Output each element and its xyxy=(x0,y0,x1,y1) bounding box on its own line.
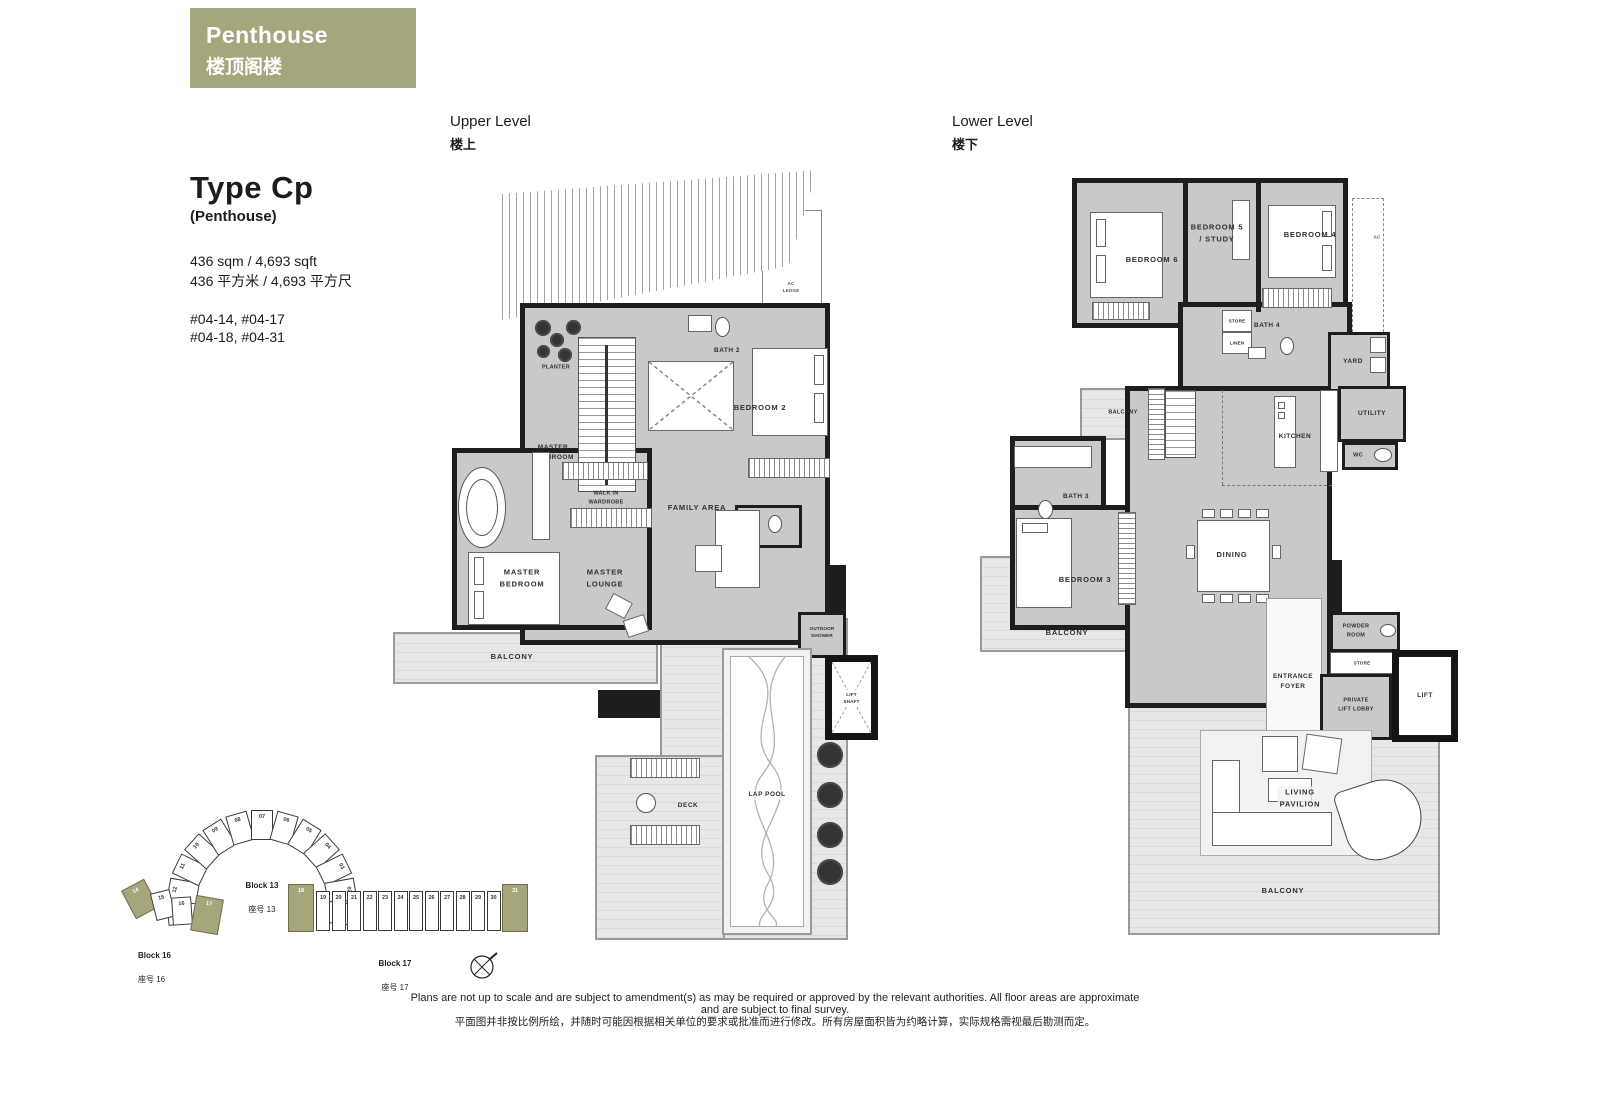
dining-chair xyxy=(1220,509,1233,518)
block17-label-en: Block 17 xyxy=(379,959,412,968)
upper-level-heading: Upper Level xyxy=(450,113,531,130)
room-label-bedroom3: BEDROOM 3 xyxy=(1059,574,1112,586)
compass-icon xyxy=(468,950,500,982)
room-label-deck: DECK xyxy=(678,801,698,811)
room-label-lift-shaft: LIFT SHAFT xyxy=(842,689,860,705)
unit-number: 11 xyxy=(173,855,190,877)
room-label-wc: WC xyxy=(1353,452,1363,461)
siteplan-unit: 28 xyxy=(456,891,470,931)
floorplan-page: Penthouse 楼顶阁楼 Type Cp (Penthouse) 436 s… xyxy=(0,0,1600,1112)
disclaimer-en: Plans are not up to scale and are subjec… xyxy=(400,992,1150,1016)
badge-title: Penthouse xyxy=(206,22,416,49)
room-label-outdoor-shower: OUTDOOR SHOWER xyxy=(810,625,835,639)
toilet-icon xyxy=(1038,500,1053,519)
bed-pillow xyxy=(474,557,484,585)
unit-number: 27 xyxy=(441,892,453,901)
block17-label: Block 17 座号 17 xyxy=(379,946,412,994)
room-label-master-lounge: MASTER LOUNGE xyxy=(587,566,624,589)
wall-segment xyxy=(598,690,660,718)
bed-pillow xyxy=(474,591,484,619)
bathtub-inner xyxy=(466,479,498,536)
kitchen-boundary xyxy=(1222,390,1224,485)
room-label-linen: LINEN xyxy=(1230,339,1245,346)
stove-icon xyxy=(1278,412,1285,419)
room-label-bedroom2: BEDROOM 2 xyxy=(734,402,787,414)
block13-label-en: Block 13 xyxy=(246,881,279,890)
vanity-counter xyxy=(532,452,550,540)
plant-icon xyxy=(550,333,564,347)
kitchen-counter xyxy=(1320,390,1338,472)
terrace-area-2 xyxy=(595,755,725,940)
room-label-store-upper: STORE xyxy=(1229,317,1246,324)
bed-pillow xyxy=(1096,219,1106,247)
unit-number: 06 xyxy=(276,812,298,826)
toilet-icon xyxy=(1374,448,1392,462)
plant-icon xyxy=(537,345,550,358)
toilet-icon xyxy=(1380,624,1396,637)
bed-pillow xyxy=(814,393,824,423)
siteplan-unit: 20 xyxy=(332,891,346,931)
siteplan-unit: 30 xyxy=(487,891,501,931)
siteplan-unit: 16 xyxy=(171,896,193,925)
void-area xyxy=(648,361,734,431)
wall-segment xyxy=(1332,560,1342,612)
lower-level-heading-zh: 楼下 xyxy=(952,134,978,153)
siteplan-unit: 27 xyxy=(440,891,454,931)
badge-title-zh: 楼顶阁楼 xyxy=(206,52,416,79)
unit-number: 29 xyxy=(472,892,484,901)
plant-icon xyxy=(817,742,843,768)
room-label-yard: YARD xyxy=(1343,357,1363,367)
plant-icon xyxy=(558,348,572,362)
unit-number: 22 xyxy=(364,892,376,901)
room-label-store-lower: STORE xyxy=(1354,659,1371,666)
room-label-entrance-foyer: ENTRANCE FOYER xyxy=(1273,672,1313,692)
bed-pillow xyxy=(1096,255,1106,283)
type-badge: Penthouse 楼顶阁楼 xyxy=(190,8,416,88)
room-label-lap-pool: LAP POOL xyxy=(746,790,787,800)
unit-number: 14 xyxy=(122,880,147,899)
block17-label-zh: 座号 17 xyxy=(381,983,408,992)
disclaimer-zh: 平面图并非按比例所绘，并随时可能因根据相关单位的要求或批准而进行修改。所有房屋面… xyxy=(400,1014,1150,1029)
room-label-kitchen: KITCHEN xyxy=(1279,432,1311,442)
dining-chair xyxy=(1202,509,1215,518)
wardrobe-rack xyxy=(1262,288,1332,308)
lower-level-plan: AC BEDROOM 6 BEDROOM 5 / STUDY BEDROOM 4… xyxy=(950,165,1462,950)
room-label-balcony-left: BALCONY xyxy=(1046,627,1089,639)
siteplan-unit: 23 xyxy=(378,891,392,931)
room-label-balcony-lower: BALCONY xyxy=(1262,885,1305,897)
armchair xyxy=(1302,734,1343,775)
room-label-bedroom5: BEDROOM 5 / STUDY xyxy=(1191,221,1244,244)
room-label-bedroom4: BEDROOM 4 xyxy=(1284,229,1337,241)
room-label-walk-in-wardrobe: WALK IN WARDROBE xyxy=(588,489,623,506)
siteplan-unit: 22 xyxy=(363,891,377,931)
store-closet: STORE xyxy=(1222,310,1252,332)
bath4-sink xyxy=(1248,347,1266,359)
lift: LIFT xyxy=(1392,650,1458,742)
room-label-balcony-upper: BALCONY xyxy=(491,651,534,663)
staircase-lower xyxy=(1165,390,1196,458)
bathtub-bath3 xyxy=(1014,446,1092,468)
unit-number: 21 xyxy=(348,892,360,901)
room-label-bath3: BATH 3 xyxy=(1063,492,1089,502)
dining-chair xyxy=(1238,594,1251,603)
siteplan-unit: 24 xyxy=(394,891,408,931)
wardrobe-rack xyxy=(748,458,830,478)
deck-table xyxy=(636,793,656,813)
site-key-plan: 13 12 11 10 09 08 07 06 05 04 03 02 01 B… xyxy=(120,778,550,998)
room-label-ac-ledge: AC LEDGE xyxy=(783,280,800,294)
unit-number: 08 xyxy=(226,812,248,826)
washer-icon xyxy=(1370,337,1386,353)
wall-segment xyxy=(828,565,846,612)
unit-number: 04 xyxy=(318,835,338,856)
dining-chair xyxy=(1256,509,1269,518)
block16-label-zh: 座号 16 xyxy=(138,975,165,984)
bed-pillow xyxy=(814,355,824,385)
block16-label-en: Block 16 xyxy=(138,951,171,960)
unit-number: 09 xyxy=(204,820,226,838)
dining-chair xyxy=(1272,545,1281,559)
unit-number: 10 xyxy=(185,835,205,856)
unit-number: 18 xyxy=(289,885,313,894)
wardrobe-rack xyxy=(1092,302,1150,320)
dining-chair xyxy=(1202,594,1215,603)
store-lower-closet: STORE xyxy=(1330,652,1394,674)
wardrobe-rack xyxy=(570,508,652,528)
room-label-master-bedroom: MASTER BEDROOM xyxy=(500,566,545,589)
unit-number: 31 xyxy=(503,885,527,894)
block13-label-zh: 座号 13 xyxy=(248,905,275,914)
room-label-bedroom6: BEDROOM 6 xyxy=(1126,254,1179,266)
dining-chair xyxy=(1220,594,1233,603)
unit-number: 05 xyxy=(299,820,321,838)
upper-level-heading-zh: 楼上 xyxy=(450,134,476,153)
deck-lounger xyxy=(630,825,700,845)
room-label-planter: PLANTER xyxy=(542,364,570,373)
siteplan-unit-highlight: 31 xyxy=(502,884,528,932)
unit-number: 03 xyxy=(334,855,351,877)
unit-number: 26 xyxy=(426,892,438,901)
block13-label: Block 13 座号 13 xyxy=(246,868,279,916)
room-label-bath4: BATH 4 xyxy=(1254,321,1280,331)
toilet-icon xyxy=(1280,337,1294,355)
wardrobe-rack xyxy=(1118,512,1136,605)
toilet-icon xyxy=(768,515,782,533)
unit-number: 30 xyxy=(488,892,500,901)
kitchen-boundary xyxy=(1222,485,1332,487)
siteplan-unit: 25 xyxy=(409,891,423,931)
plant-icon xyxy=(535,320,551,336)
deck-lounger xyxy=(630,758,700,778)
room-label-lift: LIFT xyxy=(1417,691,1433,701)
entry-walkway xyxy=(1266,598,1322,742)
room-label-balcony-small: BALCONY xyxy=(1108,409,1137,418)
room-label-powder-room: POWDER ROOM xyxy=(1343,622,1370,639)
bath2-sink xyxy=(688,315,712,332)
siteplan-unit: 21 xyxy=(347,891,361,931)
unit-number: 17 xyxy=(196,896,223,909)
siteplan-unit-highlight: 17 xyxy=(190,895,224,935)
room-label-private-lift-lobby: PRIVATE LIFT LOBBY xyxy=(1338,696,1373,713)
bed-pillow xyxy=(1322,245,1332,271)
unit-number: 24 xyxy=(395,892,407,901)
sofa xyxy=(1212,812,1332,846)
unit-number: 25 xyxy=(410,892,422,901)
wall-segment xyxy=(1183,178,1188,302)
plant-icon xyxy=(817,822,843,848)
unit-number: 23 xyxy=(379,892,391,901)
unit-number: 16 xyxy=(172,897,191,907)
void-x-icon xyxy=(649,362,733,430)
siteplan-unit: 29 xyxy=(471,891,485,931)
siteplan-unit: 26 xyxy=(425,891,439,931)
room-label-living-pavilion: LIVING PAVILION xyxy=(1278,786,1323,809)
unit-number: 07 xyxy=(252,811,272,820)
room-label-bath2: BATH 2 xyxy=(714,346,740,356)
plant-icon xyxy=(817,782,843,808)
block16-label: Block 16 座号 16 xyxy=(138,938,171,986)
room-label-utility: UTILITY xyxy=(1358,409,1386,419)
shelf-rack xyxy=(1148,388,1165,460)
room-label-ac: AC xyxy=(1373,233,1380,240)
family-armchair xyxy=(695,545,722,572)
wardrobe-rack xyxy=(562,462,648,480)
lift-shaft: LIFT SHAFT xyxy=(825,655,878,740)
siteplan-unit-highlight: 18 xyxy=(288,884,314,932)
dining-chair xyxy=(1186,545,1195,559)
washer-icon xyxy=(1370,357,1386,373)
bath2-toilet-icon xyxy=(715,317,730,337)
dining-chair xyxy=(1238,509,1251,518)
unit-number: 20 xyxy=(333,892,345,901)
lower-level-heading: Lower Level xyxy=(952,113,1033,130)
stove-icon xyxy=(1278,402,1285,409)
plant-icon xyxy=(817,859,843,885)
room-label-dining: DINING xyxy=(1216,549,1247,561)
unit-number: 15 xyxy=(151,890,171,903)
unit-number: 19 xyxy=(317,892,329,901)
siteplan-unit: 19 xyxy=(316,891,330,931)
wall-segment xyxy=(1256,178,1261,312)
plant-icon xyxy=(566,320,581,335)
armchair xyxy=(1262,736,1298,772)
unit-number: 28 xyxy=(457,892,469,901)
bed-pillow xyxy=(1022,523,1048,533)
